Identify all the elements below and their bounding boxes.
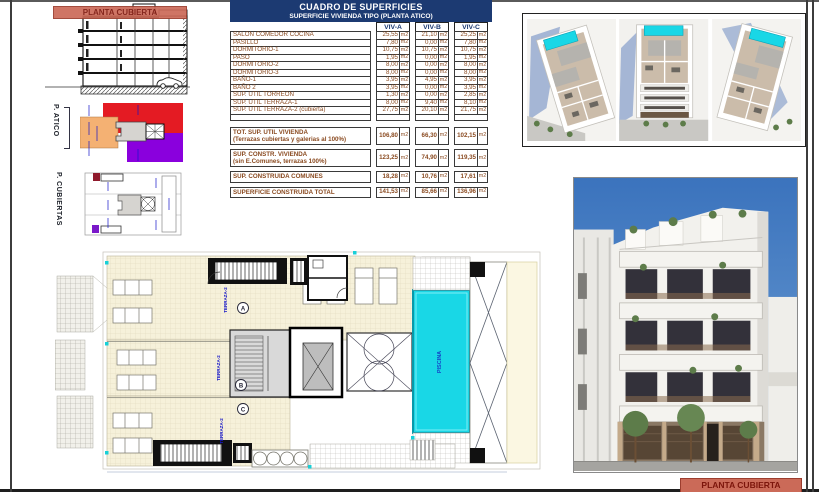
plan-left-roof-hatch [55,276,107,448]
unit-label: m2 [477,172,487,181]
total-label-line: TOT. SUP. UTIL VIVIENDA [233,129,308,136]
planta-cubierta-banner-bottom: PLANTA CUBIERTA [680,478,802,492]
value-number: 21,75 [455,107,477,113]
render2-building [637,25,693,118]
braced-gallery [470,262,537,463]
table-title: CUADRO DE SUPERFICIES [230,2,492,12]
value-number: 0,00 [416,40,438,46]
row-label [230,114,371,121]
value-cell: 66,30m2 [415,127,449,145]
unit-label: m2 [399,150,409,166]
cubiertas-stair-top [93,173,100,181]
unit-label: m2 [438,172,448,181]
roof-plan-svg: PISCINA [55,248,547,478]
value-number: 1,95 [455,55,477,61]
value-number: 10,75 [416,47,438,53]
value-number: 0,00 [416,70,438,76]
aerial-render-3 [712,19,801,141]
pool-label: PISCINA [437,351,443,373]
total-label: SUPERFICIE CONSTRUIDA TOTAL [230,187,371,198]
value-number: 8,00 [455,62,477,68]
value-number: 25,55 [377,32,399,38]
unit-mark-b: B [239,383,244,389]
top-rooms [308,256,347,300]
value-number: 8,00 [455,70,477,76]
value-number: 8,00 [377,70,399,76]
value-cell: 85,66m2 [415,187,449,198]
value-cell: 123,25m2 [376,149,410,167]
total-row: TOT. SUP. UTIL VIVIENDA(Terrazas cubiert… [230,127,492,145]
value-number: 123,25 [377,155,399,161]
total-row: SUP. CONSTR. VIVIENDA(sin E.Comunes, ter… [230,149,492,167]
value-number: 85,66 [416,189,438,195]
section-ground-hatch [81,86,187,94]
cubiertas-key-plan [83,170,183,238]
total-label: SUP. CONSTR. VIVIENDA(sin E.Comunes, ter… [230,149,371,167]
svg-text:TERRAZA-2: TERRAZA-2 [223,287,228,313]
surface-table-totals: TOT. SUP. UTIL VIVIENDA(Terrazas cubiert… [230,127,492,198]
pool: PISCINA [413,290,470,433]
sheet-frame-right-inner [812,0,814,492]
facade-render [573,177,798,473]
value-number: 10,76 [416,174,438,180]
unit-label: m2 [438,188,448,197]
total-label-line: SUP. CONSTRUIDA COMUNES [233,173,323,180]
unit-label: m2 [399,172,409,181]
value-cell: 10,76m2 [415,171,449,182]
street [574,461,797,471]
value-number: 9,40 [416,100,438,106]
surface-table: CUADRO DE SUPERFICIES SUPERFICIE VIVIEND… [230,0,492,198]
value-number: 18,28 [377,174,399,180]
value-number: 106,80 [377,133,399,139]
value-number: 119,35 [455,155,477,161]
value-number: 25,25 [455,32,477,38]
value-cell: 141,53m2 [376,187,410,198]
value-number: 3,95 [377,85,399,91]
total-label-line: SUPERFICIE CONSTRUIDA TOTAL [233,189,335,196]
aerial-renders-box [522,13,806,147]
skylight-domes [347,333,412,391]
unit-mark-a: A [241,306,246,312]
value-cell: 106,80m2 [376,127,410,145]
value-cell: 18,28m2 [376,171,410,182]
total-label-line: SUP. CONSTR. VIVIENDA [233,151,307,158]
section-balconies [78,29,83,75]
atico-side-label: P. ATICO [52,104,59,154]
render2-facade-bands [641,85,689,111]
roof-plan-drawing: PISCINA [55,248,547,478]
value-cell: 119,35m2 [454,149,488,167]
value-number: 0,00 [416,55,438,61]
value-number: 7,80 [377,40,399,46]
atico-viv-b-zone [80,117,118,148]
value-number: 8,00 [377,62,399,68]
value-number: 0,00 [416,62,438,68]
total-row: SUP. CONSTRUIDA COMUNES18,28m210,76m217,… [230,171,492,182]
planta-cubierta-banner-top: PLANTA CUBIERTA [53,6,187,19]
unit-label: m2 [438,150,448,166]
sheet-frame-left [10,0,12,492]
value-number: 8,10 [455,100,477,106]
table-row [230,114,492,121]
surface-table-header: CUADRO DE SUPERFICIES SUPERFICIE VIVIEND… [230,0,492,22]
value-cell [376,114,410,121]
value-number: 1,30 [377,92,399,98]
value-number: 21,10 [416,32,438,38]
value-cell: 17,61m2 [454,171,488,182]
sheet-frame-right-outer [806,0,808,492]
unit-label: m2 [399,188,409,197]
unit-label: m2 [399,128,409,144]
balcony-bands [620,251,763,421]
value-number: 4,95 [416,77,438,83]
atico-label-bracket [64,107,70,149]
value-number: 7,80 [455,40,477,46]
unit-label: m2 [477,188,487,197]
value-number: 20,10 [416,107,438,113]
table-subtitle: SUPERFICIE VIVIENDA TIPO (PLANTA ATICO) [230,13,492,20]
value-number: 10,75 [377,47,399,53]
value-number: 141,53 [377,189,399,195]
bottom-stair-block [153,440,252,466]
unit-mark-c: C [241,407,246,413]
value-cell [415,114,449,121]
top-stair-block [208,258,307,285]
cubiertas-stair-bottom [92,225,99,233]
atico-key-plan-svg [80,99,184,166]
value-number: 27,75 [377,107,399,113]
total-row: SUPERFICIE CONSTRUIDA TOTAL141,53m285,66… [230,187,492,198]
svg-text:TERRAZA-2: TERRAZA-2 [216,355,221,381]
value-number: 3,95 [455,85,477,91]
value-cell [454,114,488,121]
aerial-render-2 [619,19,708,141]
value-number: 66,30 [416,133,438,139]
drawing-sheet: PLANTA CUBIERTA P. ATICO P. CUBIERTAS [0,0,819,492]
surface-table-body: SALON COMEDOR COCINA25,55m221,10m225,25m… [230,31,492,121]
planter-circles [252,450,308,467]
value-number: 74,90 [416,155,438,161]
cubiertas-key-plan-svg [83,170,183,238]
value-number: 8,00 [377,100,399,106]
unit-label: m2 [477,150,487,166]
svg-text:TERRAZA-2: TERRAZA-2 [219,418,224,444]
louver-bottom [410,440,435,460]
total-label: SUP. CONSTRUIDA COMUNES [230,171,371,182]
value-number: 136,96 [455,189,477,195]
value-number: 3,95 [455,77,477,83]
value-number: 1,95 [377,55,399,61]
total-sublabel: (sin E.Comunes, terrazas 100%) [233,158,327,165]
facade-render-svg [574,178,797,471]
value-number: 17,61 [455,174,477,180]
cubiertas-side-label: P. CUBIERTAS [55,172,62,242]
value-number: 0,00 [416,85,438,91]
value-number: 102,15 [455,133,477,139]
value-number: 2,85 [455,92,477,98]
value-cell: 74,90m2 [415,149,449,167]
left-neighbor-building [574,230,614,472]
section-rear-wall [183,18,187,86]
elevator-shaft [290,328,342,397]
value-number: 10,75 [455,47,477,53]
value-number: 0,00 [416,92,438,98]
value-number: 3,95 [377,77,399,83]
right-neighbor-building [768,297,797,471]
value-cell: 102,15m2 [454,127,488,145]
unit-label: m2 [477,128,487,144]
total-label: TOT. SUP. UTIL VIVIENDA(Terrazas cubiert… [230,127,371,145]
value-cell: 136,96m2 [454,187,488,198]
atico-key-plan [80,99,184,166]
tiles-above-pool [413,257,470,290]
aerial-render-1 [527,19,616,141]
unit-label: m2 [438,128,448,144]
total-sublabel: (Terrazas cubiertas y galerias al 100%) [233,136,346,143]
